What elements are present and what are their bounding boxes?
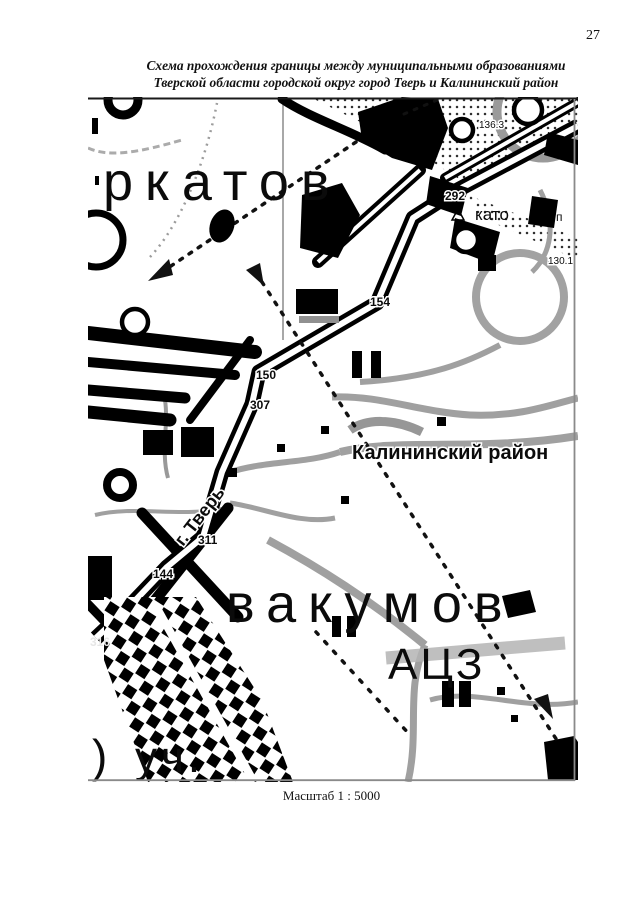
scale-caption: Масштаб 1 : 5000 — [88, 788, 575, 804]
boundary-point-154: 154 — [370, 295, 390, 309]
schema-title-line2: Тверской области городской округ город Т… — [70, 75, 640, 92]
elevation-130: 130.1 — [548, 256, 573, 267]
schema-title: Схема прохождения границы между муниципа… — [70, 58, 640, 91]
boundary-point-311: 311 — [198, 533, 218, 547]
bottom-left-label: уч. — [135, 733, 204, 782]
direction-arrow-sw-icon — [148, 259, 173, 281]
district-label: Калининский район — [352, 442, 548, 464]
boundary-point-150: 150 — [256, 368, 276, 382]
elevation-136: 136.3 — [479, 120, 504, 131]
boundary-point-292: 292 — [445, 189, 465, 203]
boundary-point-144: 144 — [153, 567, 173, 581]
boundary-point-307: 307 — [250, 398, 270, 412]
boundary-map: ркатов вакумов АЦЗ ) уч. Калининский рай… — [88, 97, 578, 782]
letter-p-label: п — [556, 210, 563, 224]
boundary-map-svg: ркатов вакумов АЦЗ ) уч. Калининский рай… — [88, 97, 578, 782]
bottom-left-bracket: ) — [92, 730, 107, 782]
facility-label: АЦЗ — [388, 640, 485, 689]
direction-arrow-se-icon — [246, 263, 264, 286]
page-number: 27 — [586, 28, 600, 44]
settlement-name-top: ркатов — [103, 152, 342, 212]
document-page: 27 Схема прохождения границы между муниц… — [0, 0, 640, 905]
settlement-name-small: като — [475, 205, 509, 224]
boundary-point-316: 316 — [90, 635, 110, 649]
settlement-name-bottom: вакумов — [226, 574, 515, 634]
schema-title-line1: Схема прохождения границы между муниципа… — [70, 58, 640, 75]
